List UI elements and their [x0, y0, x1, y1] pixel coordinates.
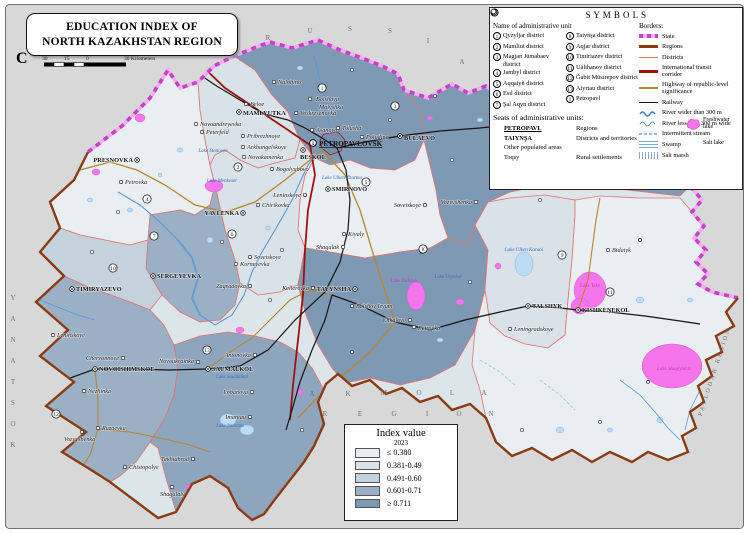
freshwater-lake [556, 427, 564, 433]
village-marker [423, 203, 426, 206]
district-number-7: 7 [150, 232, 158, 240]
admin-unit-item: 4Jambyl district [493, 69, 566, 78]
scale-bar: 30 15 0 30 Kilometers [40, 54, 170, 74]
town-bolshoy-izyum: Bolshoy Izyum [350, 303, 392, 310]
border-legend-label: Swamp [662, 141, 681, 148]
admin-unit-item: 8Taiynşa district [566, 32, 639, 41]
index-class-row: ≤ 0.380 [355, 448, 457, 458]
admin-units-col2: 8Taiynşa district9Aqjar district10Timiri… [566, 32, 639, 111]
village-marker [342, 232, 345, 235]
district-number-symbol: 6 [493, 90, 501, 98]
district-seat-dot [354, 288, 356, 290]
admin-units-col1: 1Qyzyljar district2Mamliut district3Magj… [493, 32, 566, 111]
index-value-legend: Index value 2023 ≤ 0.3800.381-0.490.491-… [344, 424, 458, 521]
admin-unit-item: 1Qyzyljar district [493, 32, 566, 41]
salt-lake [236, 327, 244, 333]
admin-units-header: Name of administrative unit [493, 22, 639, 30]
village-marker [80, 430, 83, 433]
border-legend-river-wide: River wider than 300 m [639, 109, 739, 117]
settlement-dot [220, 240, 223, 243]
town-label: YAVLENKA [204, 210, 239, 217]
river-wide-swatch [639, 109, 658, 117]
village-marker [241, 145, 244, 148]
freshwater-lake [297, 66, 303, 70]
district-seat-dot [242, 212, 244, 214]
index-class-row: 0.381-0.49 [355, 461, 457, 471]
district-number-symbol: 5 [493, 80, 501, 88]
town-label: Leninskoye [272, 192, 301, 199]
salt-lake-icon [685, 137, 701, 150]
town-label: Shagalak [316, 244, 339, 251]
index-class-label: 0.491-0.60 [387, 474, 422, 483]
village-marker [270, 167, 273, 170]
district-number-10: 10 [109, 264, 117, 272]
admin-unit-item: 9Aqjar district [566, 43, 639, 52]
town-label: PRESNOVKA [93, 157, 133, 164]
seat-sample: PETROPAVL [504, 125, 576, 133]
border-legend-label: Railway [662, 99, 683, 106]
lake-label: Lake Shaglyteniz [656, 367, 691, 372]
district-number-label: 11 [607, 290, 613, 296]
lake-label: Lake Teke [579, 284, 601, 289]
lake-label: Lake Ulken Karaoi [504, 248, 544, 253]
town-label-line2: Malyshka [318, 104, 343, 111]
district-number-label: 5 [365, 180, 368, 186]
freshwater-lake [87, 198, 93, 202]
border-legend-highway: Highway of republic-level significance [639, 81, 739, 95]
neighbor-letter-russia: U [307, 27, 312, 35]
border-legend-state: State [639, 32, 739, 40]
town-bogolyubovo: Bogolyubovo [270, 166, 308, 173]
town-label: Novokamenka [247, 154, 283, 161]
seats-header: Seats of administrative units: [493, 114, 639, 123]
town-novoandreyevka: Novoandreyevka [194, 121, 241, 128]
salt-lake [427, 116, 433, 120]
district-seat-dot [302, 149, 304, 151]
town-label: Novoukrainka [158, 358, 194, 365]
lake-label: Lake Menkeser [206, 179, 237, 184]
seat-sample: TAIYNŞA [504, 135, 576, 143]
freshwater-lake [265, 226, 271, 230]
village-marker [474, 200, 477, 203]
town-label: Tolusha [342, 125, 361, 132]
district-seat-dot [94, 368, 96, 370]
neighbor-letter-akmola_row1: A [481, 389, 486, 397]
town-sovetskoye: Sovetskoye [248, 254, 281, 261]
admin-unit-label: Aqjar district [576, 43, 609, 52]
town-label: Bolshaya [316, 96, 339, 103]
index-class-row: ≥ 0.711 [355, 499, 457, 509]
town-label: Bolshoy Izyum [356, 303, 393, 310]
neighbor-letter-akmola_row1: L [450, 389, 454, 397]
village-marker [311, 286, 314, 289]
village-marker [248, 284, 251, 287]
admin-unit-label: Petropavl [576, 95, 600, 104]
village-icon [493, 154, 504, 162]
admin-unit-item: 10Timiriazev district [566, 53, 639, 62]
village-marker [341, 245, 344, 248]
district-number-symbol: 13 [566, 85, 574, 93]
village-marker [194, 122, 197, 125]
village-marker [508, 327, 511, 330]
town-label: Chistopolye [129, 464, 159, 471]
town-label: MAMLYUTKA [243, 110, 286, 117]
admin-unit-label: Magjan Jūmabaev district [503, 53, 566, 67]
borders-header: Borders: [639, 22, 739, 30]
village-marker [200, 130, 203, 133]
village-marker [234, 262, 237, 265]
district-number-symbol: 2 [493, 43, 501, 51]
admin-unit-label: Esıl district [503, 90, 532, 99]
index-class-swatch [355, 473, 380, 483]
border-legend-label: Highway of republic-level significance [662, 81, 732, 95]
town-chervonnoye: Chervonnoye [86, 355, 125, 362]
rural-settlement-row: ToqsyRural settlements [493, 154, 639, 162]
state-swatch [639, 34, 658, 38]
town-label: Vozvyshenka [64, 436, 95, 443]
district-seat-dot [577, 309, 579, 311]
admin-unit-item: IPetropavl [566, 95, 639, 104]
district-number-label: 13 [204, 348, 210, 354]
seat-row: PETROPAVLRegions [493, 125, 639, 133]
district-seat-icon [493, 135, 504, 143]
city-symbol: I [566, 95, 574, 103]
village-marker [294, 111, 297, 114]
neighbor-letter-kostanay: O [10, 420, 15, 428]
district-number-label: 4 [146, 197, 149, 203]
settlement-dot [268, 298, 271, 301]
town-label: SAUMALKOL [212, 366, 253, 373]
border-legend-label: State [662, 33, 675, 40]
town-smirnovo: SMIRNOVO [326, 186, 368, 193]
town-chirikovka: Chirikovka [256, 202, 289, 209]
district-number-label: 9 [561, 253, 564, 259]
town-label: Petrovka [417, 325, 440, 332]
town-label: Sovetskoye [394, 202, 421, 209]
neighbor-letter-kostanay: N [10, 336, 15, 344]
town-label: TALSHYK [532, 303, 562, 310]
town-label: Bidaiyk [612, 247, 631, 254]
freshwater-lake [177, 148, 183, 152]
district-number-symbol: 4 [493, 69, 501, 77]
neighbor-letter-akmola_row2: R [323, 410, 328, 418]
village-marker [310, 128, 313, 131]
district-number-13: 13 [203, 346, 211, 354]
lake-label: Lake Uzynkol [433, 275, 462, 280]
district-number-symbol: 8 [566, 32, 574, 40]
admin-unit-item: 6Esıl district [493, 90, 566, 99]
district-seat-dot [327, 188, 329, 190]
index-class-row: 0.491-0.60 [355, 473, 457, 483]
district-seat-dot [238, 111, 240, 113]
town-label: BULAEVO [404, 135, 435, 142]
city-roman-numeral: I [312, 142, 314, 147]
town-label: Shagalaly [160, 491, 185, 498]
town-label: Chkalovo [382, 317, 406, 324]
village-marker [360, 135, 363, 138]
index-class-label: 0.381-0.49 [387, 461, 422, 470]
swamp-swatch [639, 141, 658, 148]
district-number-11: 11 [606, 288, 614, 296]
town-label: BESKOL [300, 154, 326, 161]
scale-tick-0: 0 [86, 56, 89, 62]
district-number-8: 8 [419, 245, 427, 253]
town-novoishimskoe: NOVOISHIMSKOE [93, 366, 155, 373]
neighbor-letter-akmola_row1: K [345, 390, 350, 398]
town-label: Novoandreyevka [199, 121, 241, 128]
admin-unit-label: Mamliut district [503, 43, 544, 52]
district-number-symbol: 11 [566, 64, 574, 72]
town-label: Kellerovka [281, 285, 309, 292]
town-presnovka: PRESNOVKA [93, 157, 139, 164]
neighbor-letter-russia: S [388, 27, 392, 35]
town-bulaevo: BULAEVO [398, 134, 435, 142]
town-label: Pribrezhnoye [246, 133, 280, 140]
district-number-symbol: 10 [566, 53, 574, 61]
district-seat-dot [207, 368, 209, 370]
town-label: Asanovo [315, 127, 337, 134]
lake-label: Lake Kalibek [390, 279, 418, 284]
freshwater-lake [158, 173, 162, 177]
neighbor-letter-akmola_row2: G [391, 410, 396, 418]
district-number-symbol: 7 [493, 101, 501, 109]
symbols-legend-panel: S Y M B O L S Name of administrative uni… [489, 7, 743, 190]
town-label: Arkhangelskoye [246, 144, 287, 151]
settlement-dot [433, 94, 436, 97]
river-narrow-swatch [639, 119, 658, 127]
village-marker [303, 193, 306, 196]
town-label: Sovetskoye [254, 254, 281, 261]
town-label: Antonovka [224, 352, 251, 359]
index-class-label: 0.601-0.71 [387, 486, 422, 495]
admin-unit-label: Uälihanov district [576, 64, 621, 73]
freshwater-lake [437, 338, 443, 342]
town-label: TIMIRYAZEVO [76, 286, 122, 293]
town-arkhangelskoye: Arkhangelskoye [241, 144, 286, 151]
neighbor-letter-akmola_row2: E [358, 410, 362, 418]
town-label: Chirikovka [262, 202, 290, 209]
village-marker [170, 485, 173, 488]
freshwater-lake [207, 237, 213, 243]
map-title-line1: EDUCATION INDEX OF [27, 20, 237, 34]
village-marker [336, 126, 339, 129]
neighbor-letter-akmola_row1: A [309, 390, 314, 398]
regions-swatch [639, 45, 658, 48]
village-marker [82, 389, 85, 392]
salt-lake [92, 169, 100, 175]
town-saumalkol: SAUMALKOL [206, 366, 254, 373]
lake-label: Lake Stanovoe [197, 149, 228, 154]
neighbor-letter-kostanay: K [10, 441, 15, 449]
settlement-dot [388, 118, 391, 121]
neighbor-letter-akmola_row2: N [488, 410, 493, 418]
border-legend-label: Districts [662, 54, 683, 61]
town-label: Poludino [365, 134, 389, 141]
village-marker [350, 304, 353, 307]
district-number-symbol: 1 [493, 32, 501, 40]
admin-unit-label: Taiynşa district [576, 32, 615, 41]
stream-swatch [639, 133, 658, 135]
admin-unit-item: 12Ğabit Müsırepov district [566, 74, 639, 83]
village-marker [256, 203, 259, 206]
freshwater-lake [477, 118, 483, 122]
village-marker [196, 360, 199, 363]
district-number-label: 2 [237, 165, 240, 171]
other-populated-areas-line: Other populated areas [504, 144, 639, 152]
freshwater-lake [607, 428, 613, 432]
admin-unit-item: 11Uälihanov district [566, 64, 639, 73]
admin-unit-item: 7Şal Aqyn district [493, 101, 566, 110]
town-label: Leninskoye [56, 332, 85, 339]
village-marker [408, 318, 411, 321]
village-marker [272, 80, 275, 83]
district-number-label: 12 [53, 412, 59, 418]
village-marker [250, 390, 253, 393]
town-label: Voskresenovka [300, 110, 336, 117]
district-number-label: 10 [110, 266, 116, 272]
map-title-line2: NORTH KAZAKHSTAN REGION [27, 35, 237, 49]
index-class-swatch [355, 486, 380, 496]
settlement-dot [638, 238, 641, 241]
map-title-box: EDUCATION INDEX OF NORTH KAZAKHSTAN REGI… [26, 13, 238, 56]
settlement-dot [280, 248, 283, 251]
town-label: Nalobino [277, 79, 301, 86]
town-novokamenka: Novokamenka [242, 154, 283, 161]
district-number-symbol: 12 [566, 74, 574, 82]
district-number-1: 1 [318, 84, 326, 92]
admin-unit-label: Aiyrtau district [576, 85, 614, 94]
border-legend-label: International transit corridor [662, 64, 732, 78]
district-number-2: 2 [234, 163, 242, 171]
district-number-label: 8 [422, 247, 425, 253]
town-talshyk: TALSHYK [526, 303, 563, 310]
district-seat-dot [399, 135, 401, 137]
village-marker [191, 457, 194, 460]
village-marker [121, 356, 124, 359]
freshwater-lake [687, 298, 693, 302]
scale-right-label: 30 Kilometers [124, 56, 155, 62]
neighbor-letter-kostanay: Y [10, 294, 15, 302]
index-class-row: 0.601-0.71 [355, 486, 457, 496]
admin-unit-label: Şal Aqyn district [503, 101, 545, 110]
town-label: Leningradskoye [513, 326, 554, 333]
border-legend-regions: Regions [639, 43, 739, 51]
map-page: RUSSIAAKMOLAREGIONYANATSOKPAVLODAR REGIO… [0, 0, 749, 533]
district-number-symbol: 3 [493, 53, 501, 61]
rural-sample: Toqsy [504, 154, 576, 162]
village-marker [308, 97, 311, 100]
seats-rows: PETROPAVLRegionsTAIYNŞADistricts and ter… [493, 125, 639, 161]
district-seat-dot [527, 305, 529, 307]
salt-lake [495, 263, 501, 269]
town-label: Zagradovka [216, 283, 246, 290]
seat-description: Regions [576, 125, 598, 133]
admin-unit-label: Ğabit Müsırepov district [576, 74, 638, 83]
rural-description: Rural settlements [576, 154, 622, 162]
town-label: Ruzaevka [101, 425, 126, 432]
settlement-dot [300, 428, 303, 431]
village-marker [253, 353, 256, 356]
lake-legend-label: Salt lake [703, 140, 724, 147]
district-number-label: 3 [394, 104, 397, 110]
seat-row: TAIYNŞADistricts and territories [493, 135, 639, 143]
neighbor-letter-kostanay: A [10, 357, 15, 365]
town-label: NOVOISHIMSKOE [99, 366, 155, 373]
town-label: Peterfeld [205, 129, 230, 136]
district-number-12: 12 [52, 410, 60, 418]
index-class-swatch [355, 448, 380, 458]
village-marker [248, 255, 251, 258]
lake-legend: Freshwater lakeSalt lake [685, 117, 739, 156]
village-marker [241, 134, 244, 137]
salt-lake [456, 299, 464, 305]
neighbor-letter-russia: A [459, 58, 464, 66]
district-seat-dot [136, 159, 138, 161]
settlement-dot [646, 380, 649, 383]
saltmarsh-swatch [639, 152, 658, 159]
town-label: Lobanova [222, 389, 248, 396]
town-novoukrainka: Novoukrainka [158, 358, 200, 365]
settlement-dot [538, 198, 541, 201]
district-number-label: 6 [231, 232, 234, 238]
village-marker [244, 102, 247, 105]
scale-tick-30: 30 [42, 56, 48, 62]
scale-tick-15: 15 [64, 56, 70, 62]
border-legend-label: Regions [662, 43, 683, 50]
region-seat-icon [493, 125, 504, 133]
salt-lake [135, 114, 145, 122]
seat-description: Districts and territories [576, 135, 637, 143]
town-timiryazevo: TIMIRYAZEVO [70, 286, 122, 293]
district-number-6: 6 [228, 230, 236, 238]
village-marker [242, 155, 245, 158]
settlement-dot [90, 250, 93, 253]
town-voskresenovka: Voskresenovka [294, 110, 336, 117]
salt-lake [642, 344, 702, 388]
district-number-label: 7 [153, 234, 156, 240]
admin-unit-item: 5Aqqaiyñ district [493, 80, 566, 89]
town-chistopolye: Chistopolye [123, 464, 159, 471]
lake-label: Lake Imantau [215, 424, 244, 429]
village-marker [51, 333, 54, 336]
index-class-label: ≤ 0.380 [387, 448, 411, 457]
village-marker [606, 248, 609, 251]
district-seat-dot [71, 288, 73, 290]
town-leninskoye: Leninskoye [51, 332, 85, 339]
village-marker [96, 426, 99, 429]
town-pribrezhnoye: Pribrezhnoye [241, 133, 280, 140]
town-korneyevka: Korneyevka [234, 261, 269, 268]
freshwater-lake [515, 252, 533, 276]
lake-label: Lake Saumalkol [215, 375, 249, 380]
settlement-dot [350, 350, 353, 353]
district-number-3: 3 [391, 102, 399, 110]
index-legend-title: Index value [345, 428, 457, 439]
town-label: Kiyaly [347, 231, 364, 238]
town-label: KISHKENEKOL [582, 307, 630, 314]
admin-unit-label: Qyzyljar district [503, 32, 544, 41]
index-legend-rows: ≤ 0.3800.381-0.490.491-0.600.601-0.71≥ 0… [345, 448, 457, 508]
admin-unit-item: 13Aiyrtau district [566, 85, 639, 94]
freshwater-lake [636, 297, 644, 303]
freshwater-lake [127, 208, 133, 212]
settlement-dot [520, 428, 523, 431]
border-legend-railway: Railway [639, 98, 739, 106]
border-legend-transit: International transit corridor [639, 64, 739, 78]
town-label: Nezhinka [87, 388, 111, 395]
town-leningradskoye: Leningradskoye [508, 326, 553, 333]
railway-swatch [639, 102, 658, 104]
